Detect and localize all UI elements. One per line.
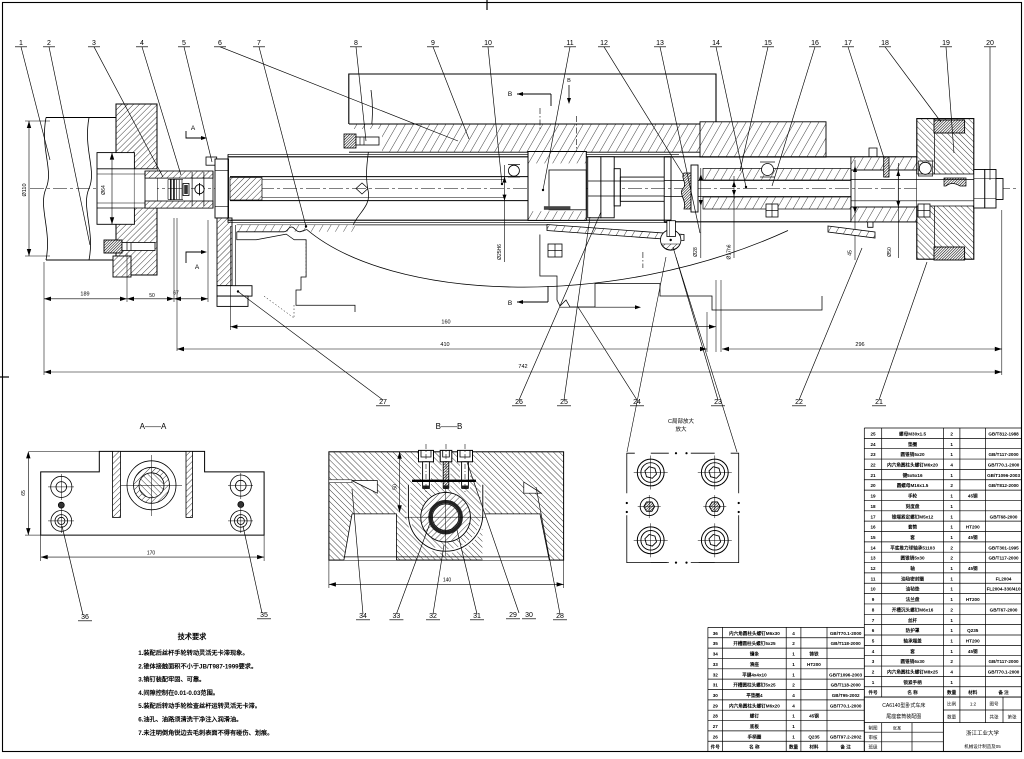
- svg-text:26: 26: [713, 734, 719, 739]
- svg-text:平垫圈4: 平垫圈4: [746, 692, 763, 699]
- svg-text:审核: 审核: [869, 734, 878, 741]
- svg-text:GB/T70.1-2000: GB/T70.1-2000: [988, 670, 1020, 675]
- svg-text:1: 1: [950, 473, 953, 478]
- svg-text:12: 12: [600, 40, 608, 47]
- svg-text:B: B: [567, 78, 571, 84]
- svg-text:15: 15: [764, 40, 772, 47]
- svg-text:GB/T1096-2003: GB/T1096-2003: [829, 672, 862, 677]
- svg-text:29: 29: [713, 703, 719, 708]
- svg-text:25: 25: [560, 399, 568, 406]
- svg-text:30: 30: [525, 612, 533, 619]
- svg-text:圆锥销5x30: 圆锥销5x30: [901, 555, 925, 562]
- svg-text:15: 15: [870, 535, 876, 540]
- svg-text:件号: 件号: [868, 689, 878, 696]
- svg-text:B: B: [508, 91, 512, 98]
- svg-text:1: 1: [950, 628, 953, 633]
- svg-text:材料: 材料: [967, 689, 978, 696]
- svg-text:23: 23: [870, 452, 876, 457]
- svg-text:开槽沉头螺钉M6x16: 开槽沉头螺钉M6x16: [892, 606, 934, 613]
- svg-text:1: 1: [950, 587, 953, 592]
- svg-text:1.装配后丝杆手轮转动灵活无卡滞现象。: 1.装配后丝杆手轮转动灵活无卡滞现象。: [138, 649, 248, 657]
- svg-text:45钢: 45钢: [968, 648, 978, 655]
- svg-text:34: 34: [713, 652, 719, 657]
- svg-text:开槽圆柱头螺钉5x25: 开槽圆柱头螺钉5x25: [733, 682, 776, 689]
- svg-text:GB/T70.1-2000: GB/T70.1-2000: [988, 463, 1020, 468]
- svg-text:5: 5: [182, 40, 186, 47]
- svg-text:1: 1: [950, 535, 953, 540]
- svg-text:平键4x4x10: 平键4x4x10: [742, 671, 767, 678]
- svg-text:2: 2: [950, 483, 953, 488]
- svg-text:HT200: HT200: [966, 525, 980, 530]
- svg-text:50: 50: [149, 293, 155, 299]
- svg-text:1: 1: [950, 649, 953, 654]
- svg-text:1: 1: [950, 576, 953, 581]
- svg-text:1: 1: [950, 525, 953, 530]
- svg-text:17: 17: [870, 514, 876, 519]
- svg-text:开槽圆柱头螺钉5x25: 开槽圆柱头螺钉5x25: [733, 640, 776, 647]
- svg-text:防护罩: 防护罩: [906, 627, 920, 634]
- svg-text:1: 1: [872, 680, 875, 685]
- svg-text:1: 1: [950, 566, 953, 571]
- svg-text:C局部放大: C局部放大: [668, 417, 694, 425]
- svg-text:50: 50: [392, 484, 398, 490]
- svg-text:铸铁: 铸铁: [809, 651, 819, 658]
- svg-text:1: 1: [950, 638, 953, 643]
- svg-text:1: 1: [792, 724, 795, 729]
- svg-text:3: 3: [92, 40, 96, 47]
- svg-text:45钢: 45钢: [968, 565, 978, 572]
- svg-text:8: 8: [872, 607, 875, 612]
- svg-text:10: 10: [484, 40, 492, 47]
- svg-text:GB/T68-2000: GB/T68-2000: [990, 514, 1018, 519]
- svg-text:键5x5x16: 键5x5x16: [902, 472, 923, 479]
- svg-text:7: 7: [257, 40, 261, 47]
- svg-text:B——B: B——B: [436, 422, 463, 431]
- svg-text:1: 1: [950, 597, 953, 602]
- svg-text:手轮: 手轮: [908, 493, 918, 500]
- svg-text:法兰盘: 法兰盘: [906, 596, 920, 603]
- svg-text:2: 2: [950, 659, 953, 664]
- svg-text:套: 套: [910, 648, 915, 655]
- svg-text:内六角圆柱头螺钉M6x30: 内六角圆柱头螺钉M6x30: [729, 630, 780, 637]
- svg-text:6: 6: [218, 40, 222, 47]
- svg-text:垫圈: 垫圈: [908, 441, 918, 448]
- svg-text:浙江工业大学: 浙江工业大学: [966, 729, 1000, 737]
- svg-text:2: 2: [47, 40, 51, 47]
- svg-text:GB/T67-2000: GB/T67-2000: [990, 607, 1018, 612]
- svg-text:410: 410: [440, 342, 449, 348]
- svg-text:丝杆: 丝杆: [908, 617, 918, 624]
- svg-text:GB/T117-2000: GB/T117-2000: [988, 452, 1019, 457]
- svg-text:14: 14: [712, 40, 720, 47]
- svg-text:套: 套: [910, 534, 915, 541]
- svg-text:轴承端盖: 轴承端盖: [903, 637, 922, 644]
- svg-text:1: 1: [950, 494, 953, 499]
- svg-text:16: 16: [811, 40, 819, 47]
- svg-text:技术要求: 技术要求: [178, 632, 208, 641]
- svg-text:GB/T70.1-2000: GB/T70.1-2000: [830, 703, 862, 708]
- svg-text:2: 2: [792, 683, 795, 688]
- svg-text:32: 32: [713, 672, 719, 677]
- svg-text:1: 1: [792, 652, 795, 657]
- svg-text:滑座: 滑座: [750, 661, 760, 668]
- svg-text:1: 1: [950, 452, 953, 457]
- svg-text:名 称: 名 称: [907, 689, 918, 696]
- svg-text:平底推力球轴承51103: 平底推力球轴承51103: [890, 544, 935, 551]
- svg-text:数量: 数量: [947, 714, 956, 721]
- svg-text:170: 170: [147, 551, 156, 557]
- svg-text:1: 1: [950, 618, 953, 623]
- svg-text:1: 1: [950, 514, 953, 519]
- svg-text:11: 11: [871, 576, 876, 581]
- svg-text:67: 67: [173, 290, 179, 296]
- svg-text:内六角圆柱头螺钉M6x20: 内六角圆柱头螺钉M6x20: [887, 462, 938, 469]
- svg-text:Ø110: Ø110: [22, 183, 28, 196]
- svg-text:21: 21: [875, 399, 883, 406]
- svg-text:GB/T70.1-2000: GB/T70.1-2000: [830, 631, 862, 636]
- svg-text:27: 27: [379, 399, 387, 406]
- svg-text:4: 4: [950, 463, 953, 468]
- svg-text:1: 1: [19, 40, 23, 47]
- svg-text:16: 16: [870, 525, 876, 530]
- svg-text:圆锥销6x30: 圆锥销6x30: [901, 658, 925, 665]
- svg-text:11: 11: [566, 40, 573, 47]
- svg-text:套筒: 套筒: [908, 524, 918, 531]
- svg-text:底板: 底板: [750, 723, 760, 730]
- svg-text:HT200: HT200: [807, 662, 821, 667]
- svg-text:26: 26: [515, 399, 523, 406]
- svg-text:296: 296: [855, 342, 864, 348]
- svg-text:Ø50: Ø50: [887, 247, 893, 257]
- svg-text:28: 28: [713, 714, 719, 719]
- svg-text:Q235: Q235: [967, 628, 979, 633]
- svg-text:9: 9: [431, 40, 435, 47]
- svg-text:GB/T812-1988: GB/T812-1988: [988, 431, 1019, 436]
- svg-text:A: A: [191, 125, 196, 132]
- svg-text:21: 21: [870, 473, 876, 478]
- svg-text:Ø17h6: Ø17h6: [727, 244, 733, 259]
- svg-text:班级: 班级: [869, 744, 878, 751]
- svg-text:机械设计制造及05: 机械设计制造及05: [964, 743, 1001, 750]
- svg-text:比例: 比例: [947, 701, 956, 708]
- svg-text:油毡密封圈: 油毡密封圈: [901, 575, 924, 582]
- svg-text:45钢: 45钢: [968, 493, 978, 500]
- svg-text:9: 9: [872, 597, 875, 602]
- svg-text:Ø28: Ø28: [693, 247, 699, 257]
- svg-text:2.锥体接触面积不小于JB/T987-1999要求。: 2.锥体接触面积不小于JB/T987-1999要求。: [138, 662, 257, 670]
- svg-text:30: 30: [713, 693, 719, 698]
- svg-text:35: 35: [260, 612, 268, 619]
- svg-text:GB/T118-2000: GB/T118-2000: [831, 683, 862, 688]
- svg-text:33: 33: [713, 662, 719, 667]
- svg-text:1: 1: [792, 714, 795, 719]
- svg-text:6: 6: [872, 628, 875, 633]
- svg-text:20: 20: [870, 483, 876, 488]
- svg-text:31: 31: [473, 613, 481, 620]
- svg-text:数量: 数量: [789, 744, 799, 751]
- svg-text:36: 36: [81, 614, 89, 621]
- svg-text:镶条: 镶条: [750, 651, 760, 658]
- svg-text:GB/T118-2000: GB/T118-2000: [831, 641, 862, 646]
- svg-text:27: 27: [713, 724, 719, 729]
- svg-text:螺母M30x1.5: 螺母M30x1.5: [899, 430, 927, 437]
- svg-text:锁紧手柄: 锁紧手柄: [903, 679, 922, 686]
- svg-text:28: 28: [556, 613, 564, 620]
- svg-text:45: 45: [848, 250, 854, 256]
- svg-text:29: 29: [509, 612, 517, 619]
- svg-text:8: 8: [354, 40, 358, 47]
- svg-text:件号: 件号: [711, 744, 721, 751]
- svg-text:轴: 轴: [910, 565, 915, 572]
- svg-text:数量: 数量: [947, 689, 957, 696]
- svg-text:放大: 放大: [675, 425, 687, 433]
- svg-text:12: 12: [870, 566, 876, 571]
- svg-text:7: 7: [872, 618, 875, 623]
- svg-text:1: 1: [950, 680, 953, 685]
- svg-text:GB/T301-1995: GB/T301-1995: [988, 545, 1019, 550]
- svg-text:19: 19: [942, 40, 950, 47]
- svg-text:18: 18: [870, 504, 876, 509]
- svg-text:GB/T117-2000: GB/T117-2000: [988, 659, 1019, 664]
- svg-text:4: 4: [872, 649, 875, 654]
- svg-text:4.间隙控制在0.01-0.03范围。: 4.间隙控制在0.01-0.03范围。: [138, 689, 219, 697]
- svg-text:GB/T97.2-2002: GB/T97.2-2002: [830, 734, 862, 739]
- svg-text:13: 13: [656, 40, 664, 47]
- svg-text:CA6140型卧式车床: CA6140型卧式车床: [882, 702, 925, 709]
- svg-text:备 注: 备 注: [839, 744, 851, 751]
- svg-text:名 称: 名 称: [749, 744, 760, 751]
- svg-text:189: 189: [80, 291, 89, 297]
- svg-text:35: 35: [713, 641, 719, 646]
- svg-text:1:2: 1:2: [970, 702, 977, 707]
- svg-text:螺钉: 螺钉: [750, 713, 760, 720]
- svg-text:A——A: A——A: [140, 422, 167, 431]
- svg-text:GB/T117-2000: GB/T117-2000: [988, 556, 1019, 561]
- svg-text:24: 24: [870, 442, 876, 447]
- svg-text:FL2004: FL2004: [996, 576, 1012, 581]
- svg-text:13: 13: [870, 556, 876, 561]
- svg-text:2: 2: [950, 607, 953, 612]
- svg-text:4: 4: [792, 631, 795, 636]
- svg-text:第张: 第张: [1008, 714, 1017, 721]
- svg-text:14: 14: [870, 545, 876, 550]
- svg-text:备 注: 备 注: [997, 689, 1009, 696]
- svg-text:Ø25H6: Ø25H6: [497, 244, 503, 260]
- svg-text:36: 36: [713, 631, 719, 636]
- svg-text:1: 1: [792, 672, 795, 677]
- svg-text:34: 34: [359, 613, 367, 620]
- svg-text:内六角圆柱头螺钉M8x25: 内六角圆柱头螺钉M8x25: [887, 669, 938, 676]
- svg-text:圆锥销5x20: 圆锥销5x20: [901, 451, 925, 458]
- svg-text:22: 22: [795, 399, 803, 406]
- svg-text:A: A: [195, 264, 200, 271]
- svg-text:25: 25: [870, 431, 876, 436]
- svg-text:锥端紧定螺钉M5x12: 锥端紧定螺钉M5x12: [892, 513, 934, 520]
- svg-text:3: 3: [872, 659, 875, 664]
- svg-text:45钢: 45钢: [809, 713, 819, 720]
- svg-text:4: 4: [140, 40, 144, 47]
- svg-text:材料: 材料: [808, 744, 819, 751]
- svg-text:圆螺母M16x1.5: 圆螺母M16x1.5: [897, 482, 929, 489]
- svg-text:140: 140: [443, 577, 452, 583]
- svg-text:17: 17: [844, 40, 852, 47]
- svg-text:3.销钉装配牢固、可靠。: 3.销钉装配牢固、可靠。: [138, 676, 205, 684]
- svg-text:2: 2: [950, 556, 953, 561]
- svg-text:GB/T1096-2003: GB/T1096-2003: [987, 473, 1020, 478]
- svg-text:GB/T95-2002: GB/T95-2002: [832, 693, 860, 698]
- svg-text:160: 160: [441, 320, 450, 326]
- svg-text:2: 2: [872, 670, 875, 675]
- svg-text:Ø64: Ø64: [101, 185, 107, 195]
- svg-text:2: 2: [950, 545, 953, 550]
- svg-text:22: 22: [870, 463, 876, 468]
- svg-text:HT200: HT200: [966, 638, 980, 643]
- svg-text:FL2004-330/410: FL2004-330/410: [987, 587, 1021, 592]
- svg-text:742: 742: [518, 364, 527, 370]
- svg-text:10: 10: [870, 587, 876, 592]
- svg-text:GB/T812-2000: GB/T812-2000: [988, 483, 1019, 488]
- svg-text:1: 1: [950, 442, 953, 447]
- svg-text:4: 4: [950, 670, 953, 675]
- svg-text:尾座套筒装配图: 尾座套筒装配图: [886, 713, 921, 720]
- svg-text:33: 33: [393, 613, 401, 620]
- svg-text:31: 31: [713, 683, 719, 688]
- svg-text:5.装配后转动手轮检查丝杆运转灵活无卡滞。: 5.装配后转动手轮检查丝杆运转灵活无卡滞。: [138, 702, 261, 710]
- svg-text:手柄圈: 手柄圈: [748, 733, 762, 740]
- svg-text:制图: 制图: [869, 725, 878, 732]
- svg-text:张某: 张某: [893, 725, 902, 732]
- svg-text:4: 4: [792, 703, 795, 708]
- svg-text:45钢: 45钢: [968, 534, 978, 541]
- svg-text:4: 4: [792, 693, 795, 698]
- svg-text:5: 5: [872, 638, 875, 643]
- svg-text:HT200: HT200: [966, 597, 980, 602]
- svg-text:2: 2: [792, 641, 795, 646]
- svg-text:20: 20: [986, 40, 994, 47]
- svg-text:内六角圆柱头螺钉M6x20: 内六角圆柱头螺钉M6x20: [729, 702, 780, 709]
- svg-text:19: 19: [870, 494, 876, 499]
- svg-text:18: 18: [881, 40, 889, 47]
- svg-text:23: 23: [714, 399, 722, 406]
- svg-text:6.油孔、油路须清洗干净注入润滑油。: 6.油孔、油路须清洗干净注入润滑油。: [138, 716, 242, 724]
- svg-text:B: B: [508, 300, 512, 307]
- svg-text:油毡垫: 油毡垫: [906, 586, 920, 593]
- svg-text:24: 24: [633, 399, 641, 406]
- svg-text:7.未注明倒角锐边去毛刺表面不得有碰伤、划痕。: 7.未注明倒角锐边去毛刺表面不得有碰伤、划痕。: [138, 729, 273, 737]
- svg-text:32: 32: [429, 613, 437, 620]
- svg-text:共张: 共张: [990, 714, 999, 721]
- svg-text:刻度盘: 刻度盘: [906, 503, 920, 510]
- svg-text:Q235: Q235: [808, 734, 820, 739]
- svg-text:1: 1: [950, 504, 953, 509]
- svg-text:2: 2: [950, 431, 953, 436]
- svg-text:1: 1: [792, 734, 795, 739]
- svg-text:1: 1: [792, 662, 795, 667]
- svg-text:65: 65: [21, 490, 27, 496]
